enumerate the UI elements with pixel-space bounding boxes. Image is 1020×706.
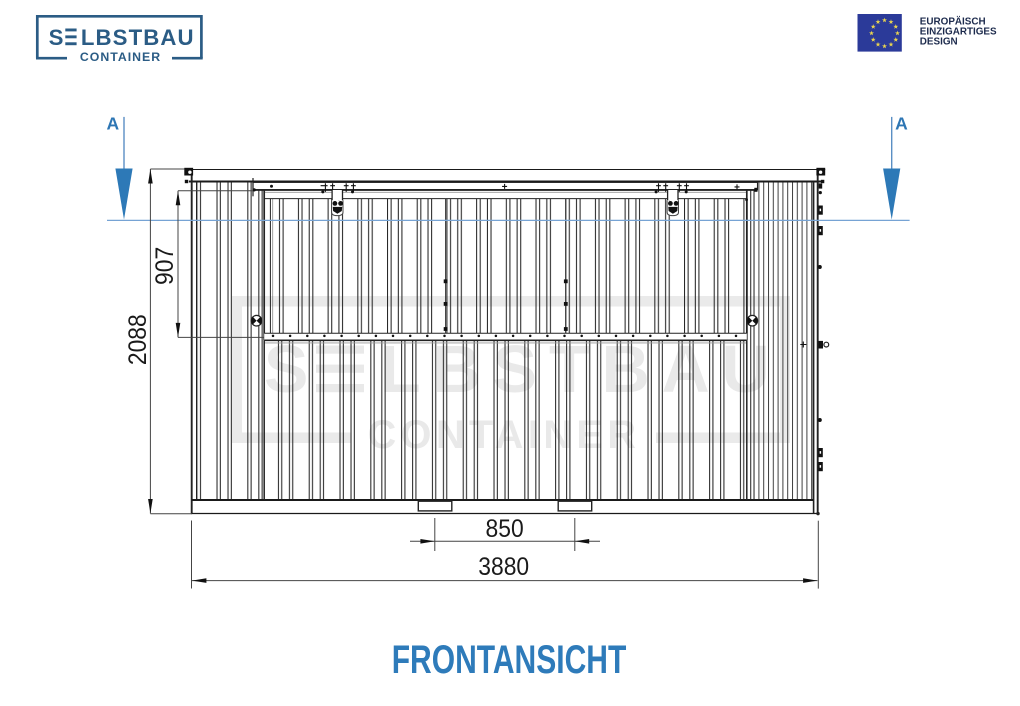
svg-text:907: 907: [151, 247, 179, 285]
svg-text:FRONTANSICHT: FRONTANSICHT: [392, 638, 627, 682]
svg-text:3880: 3880: [478, 553, 529, 581]
svg-text:DESIGN: DESIGN: [920, 36, 958, 47]
svg-text:A: A: [895, 113, 908, 133]
svg-text:LBSTBAU: LBSTBAU: [81, 25, 195, 50]
svg-text:850: 850: [486, 515, 524, 543]
svg-text:S: S: [49, 25, 64, 50]
svg-text:CONTAINER: CONTAINER: [80, 50, 161, 64]
svg-text:A: A: [106, 113, 119, 133]
svg-text:2088: 2088: [124, 314, 152, 365]
